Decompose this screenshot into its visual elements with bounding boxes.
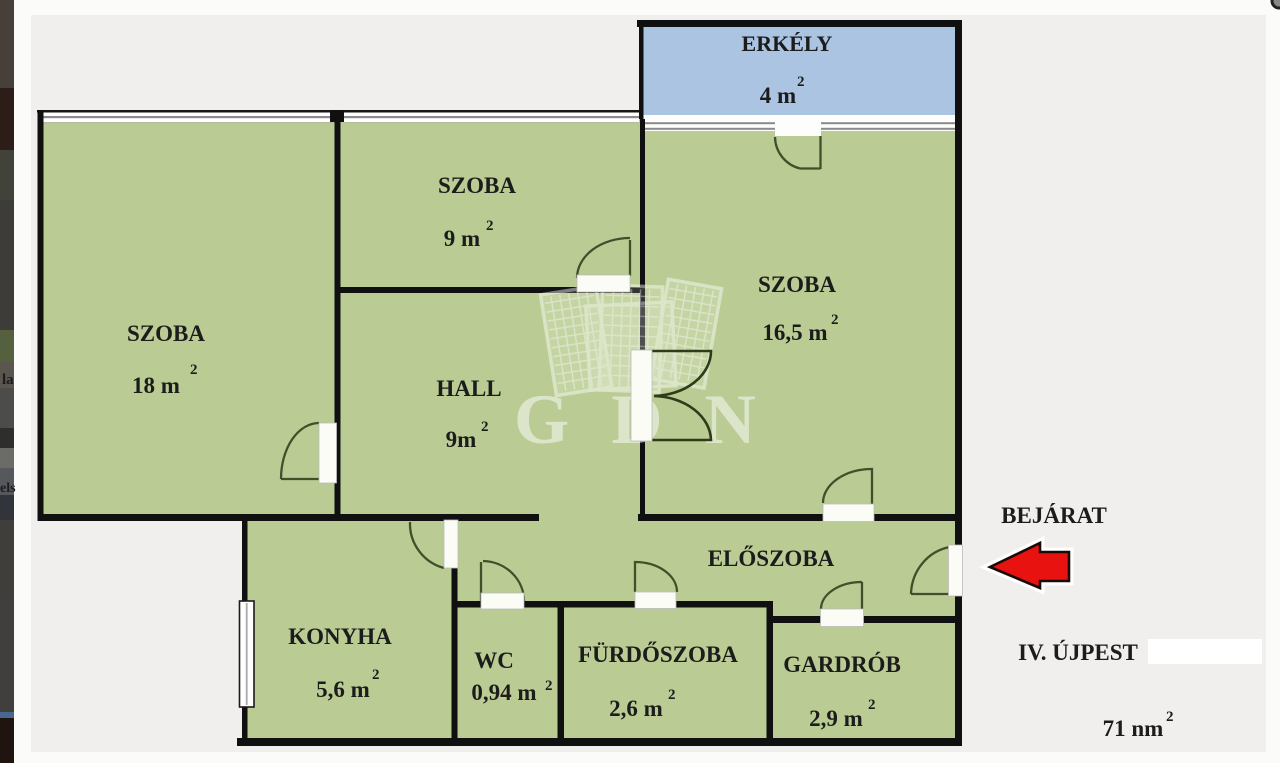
- svg-text:2: 2: [486, 218, 494, 234]
- svg-text:WC: WC: [474, 648, 514, 673]
- svg-text:KONYHA: KONYHA: [288, 624, 392, 649]
- svg-text:2: 2: [797, 74, 805, 90]
- svg-text:GDN: GDN: [514, 381, 798, 459]
- svg-text:4 m: 4 m: [760, 83, 796, 108]
- svg-text:71 nm: 71 nm: [1103, 716, 1164, 741]
- svg-text:SZOBA: SZOBA: [758, 272, 836, 297]
- svg-text:BEJÁRAT: BEJÁRAT: [1001, 503, 1107, 528]
- svg-text:IV. ÚJPEST: IV. ÚJPEST: [1018, 640, 1138, 665]
- svg-text:els: els: [0, 481, 16, 496]
- svg-text:2: 2: [190, 362, 198, 378]
- svg-text:2,6 m: 2,6 m: [609, 696, 663, 721]
- svg-text:SZOBA: SZOBA: [438, 173, 516, 198]
- svg-text:9 m: 9 m: [444, 226, 480, 251]
- svg-text:9m: 9m: [446, 427, 477, 452]
- svg-text:2,9 m: 2,9 m: [809, 706, 863, 731]
- svg-text:la: la: [2, 372, 14, 388]
- svg-text:FÜRDŐSZOBA: FÜRDŐSZOBA: [578, 641, 738, 667]
- svg-text:18 m: 18 m: [132, 373, 180, 398]
- svg-text:0,94 m: 0,94 m: [471, 680, 536, 705]
- svg-text:2: 2: [1166, 709, 1174, 725]
- svg-text:2: 2: [545, 678, 553, 694]
- svg-text:GARDRÓB: GARDRÓB: [783, 651, 901, 677]
- svg-text:2: 2: [868, 697, 876, 713]
- svg-text:2: 2: [372, 667, 380, 683]
- svg-text:HALL: HALL: [436, 376, 501, 401]
- svg-text:ELŐSZOBA: ELŐSZOBA: [708, 545, 835, 571]
- svg-text:SZOBA: SZOBA: [127, 321, 205, 346]
- svg-text:2: 2: [668, 687, 676, 703]
- svg-text:ERKÉLY: ERKÉLY: [742, 31, 833, 56]
- svg-text:2: 2: [481, 419, 489, 435]
- svg-text:5,6 m: 5,6 m: [316, 677, 370, 702]
- svg-text:16,5 m: 16,5 m: [762, 320, 827, 345]
- svg-text:2: 2: [831, 312, 839, 328]
